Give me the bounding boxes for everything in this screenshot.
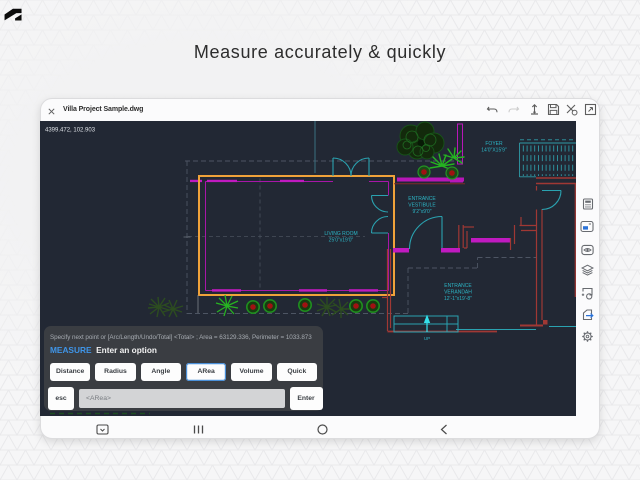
svg-text:ENTRANCE: ENTRANCE bbox=[444, 283, 472, 289]
svg-text:FOYER: FOYER bbox=[485, 141, 503, 147]
svg-text:9'2"x9'0": 9'2"x9'0" bbox=[412, 209, 431, 215]
svg-text:12'-1"x19'-8": 12'-1"x19'-8" bbox=[444, 296, 472, 302]
svg-text:25'0"x19'0": 25'0"x19'0" bbox=[329, 238, 354, 244]
svg-text:VESTIBULE: VESTIBULE bbox=[408, 203, 436, 209]
svg-text:ENTRANCE: ENTRANCE bbox=[408, 196, 436, 202]
svg-text:UP: UP bbox=[424, 336, 430, 341]
svg-text:14'0"X15'9": 14'0"X15'9" bbox=[481, 148, 507, 154]
svg-text:LIVING ROOM: LIVING ROOM bbox=[324, 231, 357, 237]
svg-text:4399.472, 102.903: 4399.472, 102.903 bbox=[45, 128, 96, 134]
svg-text:VERANDAH: VERANDAH bbox=[444, 290, 472, 296]
